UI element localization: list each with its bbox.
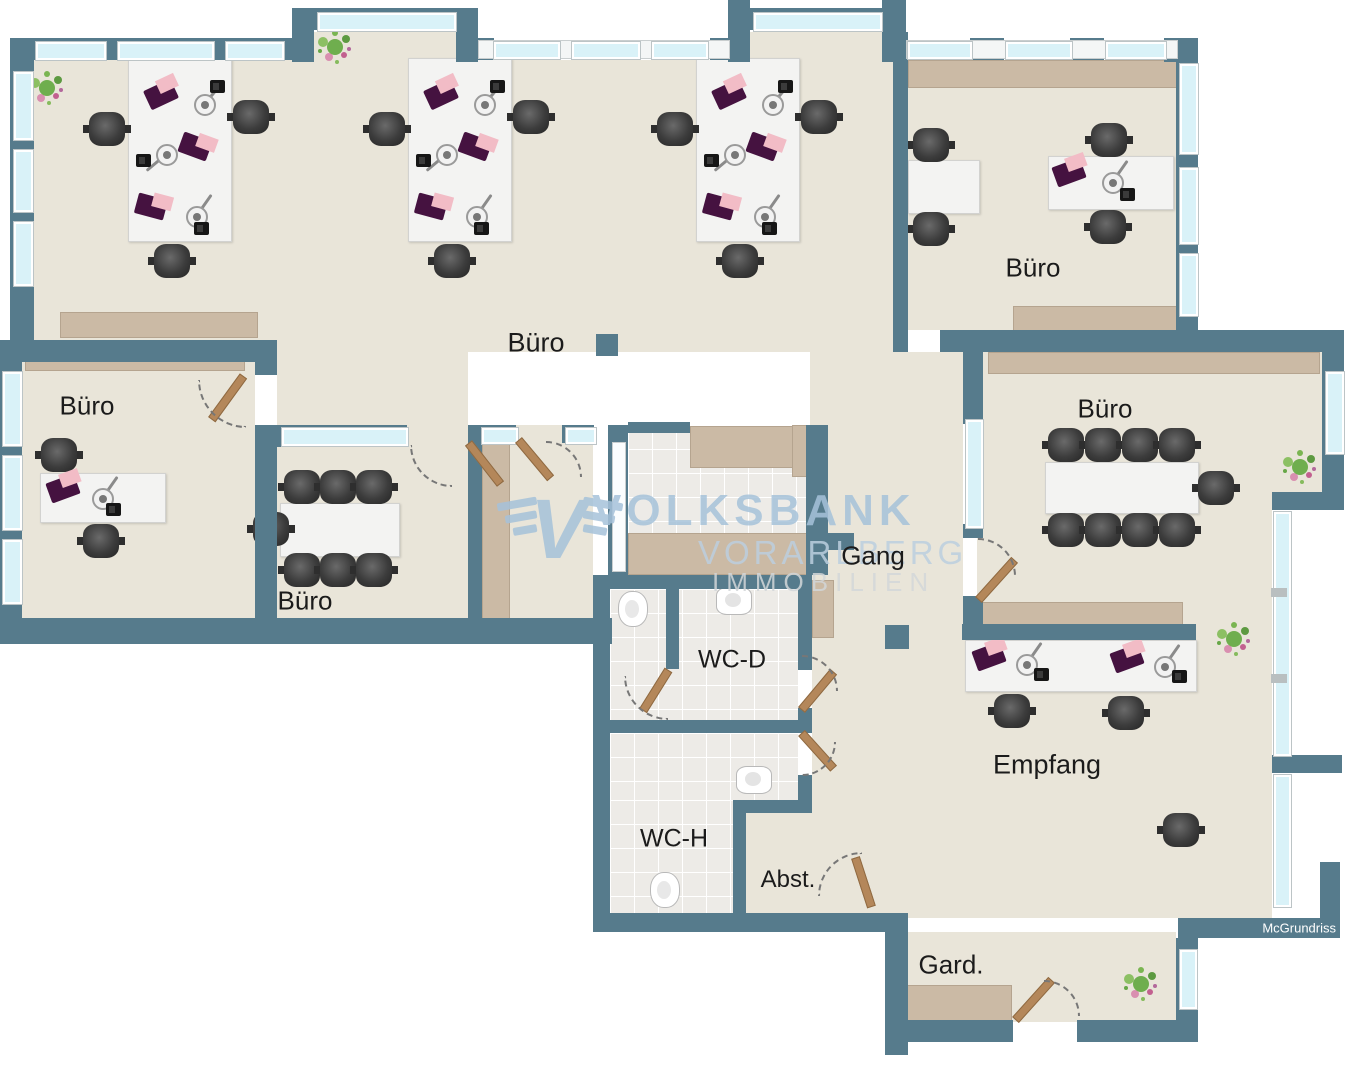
desk-phone <box>194 222 209 235</box>
wall <box>255 425 279 447</box>
wall <box>593 913 908 932</box>
office-chair <box>1159 428 1195 462</box>
office-chair <box>320 470 356 504</box>
lamp-dot <box>1109 179 1117 187</box>
window <box>566 428 596 444</box>
office-chair <box>320 553 356 587</box>
desk-phone <box>416 154 431 167</box>
room-label-wardrobe: Gard. <box>918 950 983 981</box>
lamp-dot <box>481 101 489 109</box>
wall <box>1272 492 1344 510</box>
wall <box>0 340 258 362</box>
room-label-office-left: Büro <box>60 391 115 422</box>
desk <box>280 503 400 557</box>
room-label-reception: Empfang <box>993 750 1101 781</box>
office-chair <box>722 244 758 278</box>
office-chair <box>513 100 549 134</box>
desk-phone <box>210 80 225 93</box>
office-chair <box>434 244 470 278</box>
window <box>1106 42 1166 59</box>
desk-phone <box>106 503 121 516</box>
desk-phone <box>1172 670 1187 683</box>
room-label-open-office: Büro <box>507 328 564 359</box>
window <box>1274 512 1291 756</box>
room-label-meeting-small: Büro <box>278 586 333 617</box>
wall <box>885 625 909 649</box>
office-chair <box>1090 210 1126 244</box>
window <box>282 428 408 446</box>
plant <box>1133 976 1149 992</box>
lamp-dot <box>473 213 481 221</box>
window <box>226 42 284 60</box>
toilet <box>618 591 648 627</box>
desk-phone <box>778 80 793 93</box>
office-chair <box>356 553 392 587</box>
wall <box>628 422 690 433</box>
office-chair <box>657 112 693 146</box>
desk-lamp <box>436 144 458 166</box>
window <box>3 456 22 530</box>
desk-phone <box>1034 668 1049 681</box>
window <box>754 13 882 31</box>
window <box>1180 950 1197 1009</box>
office-chair <box>233 100 269 134</box>
room-label-wc-men: WC-H <box>640 825 708 854</box>
washbasin <box>736 766 772 794</box>
sideboard <box>60 312 258 338</box>
window <box>1326 372 1344 454</box>
office-chair <box>284 553 320 587</box>
window <box>966 420 983 528</box>
window <box>572 42 640 59</box>
window <box>482 428 518 444</box>
wall <box>893 32 908 352</box>
sideboard <box>900 985 1012 1021</box>
lamp-dot <box>193 213 201 221</box>
office-chair <box>1159 513 1195 547</box>
desk-phone <box>704 154 719 167</box>
window <box>1180 254 1198 316</box>
office-chair <box>1108 696 1144 730</box>
window <box>1006 42 1072 59</box>
window <box>3 372 22 446</box>
office-chair <box>284 470 320 504</box>
window <box>318 13 456 31</box>
office-chair <box>913 128 949 162</box>
plant <box>1226 631 1242 647</box>
lamp-dot <box>769 101 777 109</box>
office-chair <box>41 438 77 472</box>
lamp-dot <box>99 495 107 503</box>
lamp-dot <box>731 151 739 159</box>
wall <box>963 352 983 424</box>
room-label-wc-women: WC-D <box>698 646 766 675</box>
plant <box>1292 459 1308 475</box>
desk-lamp <box>762 94 784 116</box>
office-chair <box>1122 513 1158 547</box>
lamp-dot <box>443 151 451 159</box>
office-chair <box>801 100 837 134</box>
office-chair <box>994 694 1030 728</box>
watermark-division: IMMOBILIEN <box>712 567 935 598</box>
wall <box>292 8 314 62</box>
sideboard <box>988 352 1320 374</box>
lamp-dot <box>761 213 769 221</box>
office-chair <box>1048 428 1084 462</box>
desk-phone <box>136 154 151 167</box>
sideboard <box>908 60 1178 88</box>
plan-credit: McGrundriss <box>1262 921 1336 936</box>
desk-lamp <box>474 94 496 116</box>
window <box>908 42 972 59</box>
wall <box>962 624 1196 640</box>
window <box>1180 168 1198 244</box>
window <box>14 222 33 286</box>
window <box>1274 775 1291 907</box>
office-chair <box>369 112 405 146</box>
desk-lamp <box>156 144 178 166</box>
window <box>494 42 560 59</box>
window <box>14 72 33 140</box>
office-chair <box>913 212 949 246</box>
wall <box>610 720 798 733</box>
window <box>14 150 33 212</box>
wall <box>1320 862 1340 920</box>
window <box>118 42 214 60</box>
office-chair <box>89 112 125 146</box>
office-chair <box>356 470 392 504</box>
wall <box>893 330 905 352</box>
wall <box>733 800 811 813</box>
wall <box>0 618 612 644</box>
office-chair <box>1085 513 1121 547</box>
wall <box>728 0 750 62</box>
toilet <box>650 872 680 908</box>
office-chair <box>83 524 119 558</box>
wall <box>666 589 679 669</box>
desk-phone <box>474 222 489 235</box>
office-chair <box>1091 123 1127 157</box>
desk-phone <box>762 222 777 235</box>
floor-plan: Büro Büro Büro Büro Büro Gang WC-D WC-H … <box>0 0 1367 1080</box>
lamp-dot <box>163 151 171 159</box>
desk-phone <box>490 80 505 93</box>
window-mullion <box>1271 588 1287 597</box>
wall <box>255 433 277 623</box>
wall <box>596 334 618 356</box>
desk-lamp <box>194 94 216 116</box>
lamp-dot <box>1023 661 1031 669</box>
sideboard <box>1013 306 1178 332</box>
wall <box>593 575 610 932</box>
watermark-brand: VOLKSBANK <box>592 486 916 536</box>
office-chair <box>1198 471 1234 505</box>
office-chair <box>1085 428 1121 462</box>
window <box>36 42 106 60</box>
window-mullion <box>1271 674 1287 683</box>
lamp-dot <box>1161 663 1169 671</box>
desk <box>908 160 980 214</box>
office-chair <box>1048 513 1084 547</box>
lamp-dot <box>201 101 209 109</box>
window <box>652 42 708 59</box>
desk-phone <box>1120 188 1135 201</box>
sideboard <box>975 602 1183 626</box>
window <box>1180 64 1198 154</box>
plant <box>327 39 343 55</box>
office-chair <box>1122 428 1158 462</box>
plant <box>39 80 55 96</box>
wall <box>255 340 277 375</box>
room-label-office-top-right: Büro <box>1006 253 1061 284</box>
wall <box>885 1020 1013 1042</box>
office-chair <box>1163 813 1199 847</box>
wall <box>456 8 478 62</box>
room-label-conference: Büro <box>1078 394 1133 425</box>
room-label-storage: Abst. <box>761 866 816 894</box>
desk-lamp <box>724 144 746 166</box>
room-label-corridor: Gang <box>841 541 905 572</box>
wall <box>1272 755 1342 773</box>
wall <box>940 330 1344 352</box>
desk <box>1045 462 1199 514</box>
wall <box>733 813 746 913</box>
office-chair <box>154 244 190 278</box>
window <box>3 540 22 604</box>
